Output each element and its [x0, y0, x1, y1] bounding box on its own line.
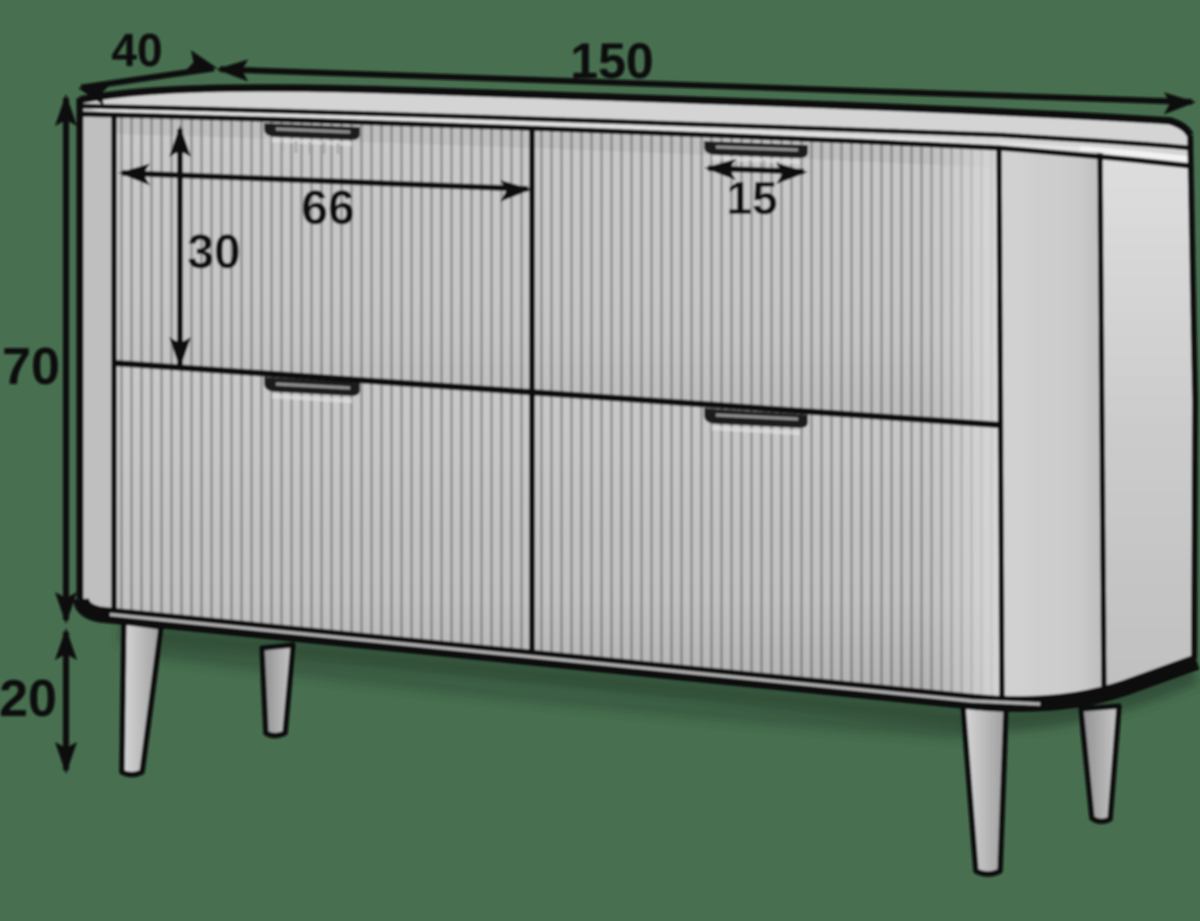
svg-text:70: 70: [2, 338, 60, 396]
svg-text:20: 20: [0, 670, 57, 728]
svg-text:66: 66: [301, 182, 354, 235]
svg-text:30: 30: [187, 226, 240, 279]
svg-text:15: 15: [726, 172, 777, 224]
svg-text:150: 150: [570, 33, 653, 89]
svg-text:40: 40: [111, 24, 162, 76]
